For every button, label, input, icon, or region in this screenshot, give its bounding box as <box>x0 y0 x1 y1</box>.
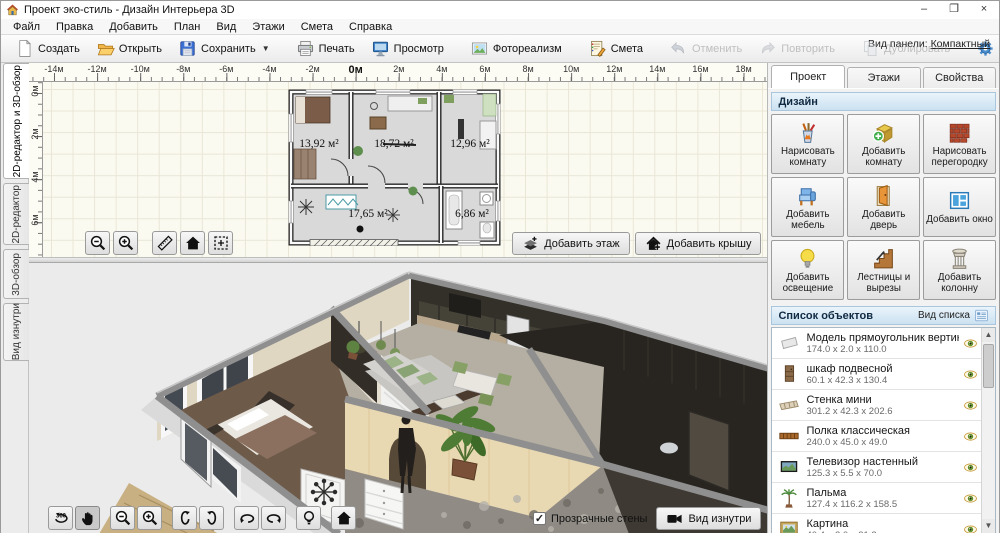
design-title: Дизайн <box>778 96 817 108</box>
eye-icon <box>963 491 978 506</box>
redo-button[interactable]: Повторить <box>750 36 843 61</box>
orbit-down-button[interactable] <box>199 506 224 530</box>
new-button[interactable]: Создать <box>7 36 88 61</box>
undo-button[interactable]: Отменить <box>661 36 750 61</box>
design-button-label: Добавить дверь <box>849 210 918 232</box>
estimate-label: Смета <box>611 43 643 55</box>
viewer-3d-toolbar: 360 <box>48 506 356 530</box>
object-dimensions: 127.4 x 116.2 x 158.5 <box>806 499 959 510</box>
menu-3[interactable]: Добавить <box>101 21 166 33</box>
object-text: Телевизор настенный125.3 x 5.5 x 70.0 <box>802 456 959 479</box>
view-tab-3[interactable]: 3D-обзор <box>3 249 29 299</box>
eye-icon <box>963 336 978 351</box>
transparent-walls-checkbox[interactable]: ✓ <box>533 512 546 525</box>
ruler-label-v: 6м <box>30 206 40 234</box>
add-light-button[interactable]: Добавить освещение <box>771 240 844 300</box>
draw-partition-icon <box>947 120 972 145</box>
home-button[interactable] <box>180 231 205 255</box>
add-furniture-button[interactable]: Добавить мебель <box>771 177 844 237</box>
view-tab-label: Вид изнутри <box>11 303 22 360</box>
object-dimensions: 125.3 x 5.5 x 70.0 <box>806 468 959 479</box>
object-list-item[interactable]: Стенка мини301.2 x 42.3 x 202.6 <box>772 390 981 421</box>
room-area-label: 12,96 м² <box>450 138 490 150</box>
object-text: Картина40.4 x 2.0 x 31.2 <box>802 518 959 533</box>
window-title: Проект эко-стиль - Дизайн Интерьера 3D <box>24 4 235 16</box>
undo-label: Отменить <box>692 43 742 55</box>
visibility-toggle[interactable] <box>959 336 981 351</box>
obj-panel-icon <box>778 332 800 354</box>
print-button[interactable]: Печать <box>288 36 363 61</box>
zoom-out-icon <box>114 509 132 527</box>
zoom-in-button[interactable] <box>113 231 138 255</box>
ruler-label-v: 4м <box>30 163 40 191</box>
floor-plan[interactable]: 13,92 м²18,72 м²12,96 м²17,65 м²6,86 м² <box>288 89 501 246</box>
view-tab-4[interactable]: Вид изнутри <box>3 303 29 361</box>
object-text: Пальма127.4 x 116.2 x 158.5 <box>802 487 959 510</box>
obj-palm-icon <box>778 487 800 509</box>
object-list-item[interactable]: шкаф подвесной60.1 x 42.3 x 130.4 <box>772 359 981 390</box>
visibility-toggle[interactable] <box>959 429 981 444</box>
view-tab-label: 2D-редактор <box>11 185 22 244</box>
undo-icon <box>669 39 688 58</box>
object-list: Модель прямоугольник вертик...174.0 x 2.… <box>771 327 996 533</box>
object-list-item[interactable]: Модель прямоугольник вертик...174.0 x 2.… <box>772 328 981 359</box>
object-name: Стенка мини <box>806 394 959 406</box>
tab-проект[interactable]: Проект <box>771 65 845 88</box>
add-roof-button[interactable]: Добавить крышу <box>635 232 762 255</box>
duplicate-icon <box>861 39 880 58</box>
design-button-label: Добавить мебель <box>773 210 842 232</box>
transparent-walls-option: ✓ Прозрачные стены <box>533 512 647 525</box>
title-bar: Проект эко-стиль - Дизайн Интерьера 3D –… <box>1 1 999 19</box>
save-button[interactable]: Сохранить▼ <box>170 36 278 61</box>
vertical-ruler: 0м2м4м6м8м <box>29 82 43 257</box>
ruler-label-h: -8м <box>168 64 198 74</box>
object-text: Полка классическая240.0 x 45.0 x 49.0 <box>802 425 959 448</box>
room-area-label: 6,86 м² <box>455 208 489 220</box>
object-thumbnail <box>775 393 802 417</box>
object-thumbnail <box>775 486 802 510</box>
object-list-item[interactable]: Пальма127.4 x 116.2 x 158.5 <box>772 483 981 514</box>
orbit-up-button[interactable] <box>172 506 197 530</box>
button-label: Добавить крышу <box>667 238 752 250</box>
editor-2d-toolbar <box>85 231 233 255</box>
ruler-label-h: -10м <box>125 64 155 74</box>
ruler-label-h: -4м <box>255 64 285 74</box>
add-furniture-icon <box>795 183 820 208</box>
scroll-thumb[interactable] <box>983 344 994 388</box>
redo-label: Повторить <box>781 43 835 55</box>
object-dimensions: 174.0 x 2.0 x 110.0 <box>806 344 959 355</box>
design-section-header: Дизайн <box>771 92 996 111</box>
object-name: Картина <box>806 518 959 530</box>
object-text: Стенка мини301.2 x 42.3 x 202.6 <box>802 394 959 417</box>
object-list-item[interactable]: Телевизор настенный125.3 x 5.5 x 70.0 <box>772 452 981 483</box>
view-tab-1[interactable]: 2D-редактор и 3D-обзор <box>3 63 30 179</box>
measure-button[interactable] <box>152 231 177 255</box>
list-view-label: Вид списка <box>918 310 970 321</box>
redo-icon <box>758 39 777 58</box>
rotate-360-icon: 360 <box>52 509 70 527</box>
toolbar: Вид панели: Компактный СоздатьОткрытьСох… <box>1 34 999 63</box>
design-buttons-grid: Нарисовать комнатуДобавить комнатуНарисо… <box>768 113 999 303</box>
view-tab-label: 2D-редактор и 3D-обзор <box>12 65 23 177</box>
eye-icon <box>963 398 978 413</box>
orbit-left-icon <box>238 509 256 527</box>
orbit-right-button[interactable] <box>261 506 286 530</box>
draw-partition-button[interactable]: Нарисовать перегородку <box>923 114 996 174</box>
ruler-label-h: 16м <box>686 64 716 74</box>
add-column-button[interactable]: Добавить колонну <box>923 240 996 300</box>
ruler-label-h: 6м <box>470 64 500 74</box>
zoom-out-button[interactable] <box>85 231 110 255</box>
preview-button[interactable]: Просмотр <box>363 36 452 61</box>
stairs-icon <box>871 246 896 271</box>
ruler-label-h: 8м <box>513 64 543 74</box>
light-bulb-button[interactable] <box>296 506 321 530</box>
object-dimensions: 60.1 x 42.3 x 130.4 <box>806 375 959 386</box>
draw-room-button[interactable]: Нарисовать комнату <box>771 114 844 174</box>
obj-wallunit-icon <box>778 394 800 416</box>
rotate-360-button[interactable]: 360 <box>48 506 73 530</box>
open-label: Открыть <box>119 43 162 55</box>
menu-2[interactable]: Правка <box>48 21 101 33</box>
orbit-left-button[interactable] <box>234 506 259 530</box>
object-list-item[interactable]: Полка классическая240.0 x 45.0 x 49.0 <box>772 421 981 452</box>
inside-view-label: Вид изнутри <box>688 513 751 525</box>
monitor-icon <box>371 39 390 58</box>
ruler-label-h: 18м <box>729 64 759 74</box>
ruler-label-v: 2м <box>30 120 40 148</box>
zoom-out-icon <box>89 234 107 252</box>
object-thumbnail <box>775 331 802 355</box>
eye-icon <box>963 460 978 475</box>
visibility-toggle[interactable] <box>959 367 981 382</box>
visibility-toggle[interactable] <box>959 491 981 506</box>
visibility-toggle[interactable] <box>959 460 981 475</box>
design-button-label: Нарисовать перегородку <box>925 147 994 169</box>
duplicate-button[interactable]: Дублировать <box>853 36 958 61</box>
menu-7[interactable]: Смета <box>293 21 341 33</box>
design-button-label: Лестницы и вырезы <box>849 273 918 295</box>
photorealism-label: Фотореализм <box>493 43 562 55</box>
ruler-label-h: 10м <box>556 64 586 74</box>
3d-scene[interactable] <box>29 263 767 533</box>
zoom-in-icon <box>141 509 159 527</box>
estimate-button[interactable]: Смета <box>580 36 651 61</box>
eye-icon <box>963 367 978 382</box>
view-mode-tabstrip: 2D-редактор и 3D-обзор2D-редактор3D-обзо… <box>1 63 29 533</box>
ruler-label-h: -2м <box>298 64 328 74</box>
right-panel-tabs: ПроектЭтажиСвойства <box>768 63 999 88</box>
menu-4[interactable]: План <box>166 21 209 33</box>
home-button[interactable] <box>331 506 356 530</box>
photorealism-button[interactable]: Фотореализм <box>462 36 570 61</box>
list-view-icon <box>974 308 989 323</box>
eye-icon <box>963 522 978 533</box>
room-area-label: 13,92 м² <box>299 138 339 150</box>
print-label: Печать <box>319 43 355 55</box>
add-column-icon <box>947 246 972 271</box>
eye-icon <box>963 429 978 444</box>
floor-plan-drawing: 13,92 м²18,72 м²12,96 м²17,65 м²6,86 м² <box>288 89 501 246</box>
orbit-up-icon <box>176 509 194 527</box>
object-text: шкаф подвесной60.1 x 42.3 x 130.4 <box>802 363 959 386</box>
object-name: шкаф подвесной <box>806 363 959 375</box>
maximize-button[interactable]: ❐ <box>939 1 969 19</box>
object-thumbnail <box>775 517 802 533</box>
estimate-icon <box>588 39 607 58</box>
room-area-label: 18,72 м² <box>374 138 414 150</box>
add-door-icon <box>871 183 896 208</box>
add-door-button[interactable]: Добавить дверь <box>847 177 920 237</box>
printer-icon <box>296 39 315 58</box>
object-name: Телевизор настенный <box>806 456 959 468</box>
ruler-label-h: 2м <box>384 64 414 74</box>
obj-tv-icon <box>778 456 800 478</box>
menu-8[interactable]: Справка <box>341 21 400 33</box>
close-button[interactable]: × <box>969 1 999 19</box>
tab-свойства[interactable]: Свойства <box>923 67 997 88</box>
object-list-scrollbar[interactable]: ▲ ▼ <box>981 328 995 533</box>
ruler-label-h: 4м <box>427 64 457 74</box>
new-label: Создать <box>38 43 80 55</box>
home-icon <box>184 234 202 252</box>
stairs-button[interactable]: Лестницы и вырезы <box>847 240 920 300</box>
object-thumbnail <box>775 455 802 479</box>
view-tab-2[interactable]: 2D-редактор <box>3 183 29 245</box>
ruler-label-h: 12м <box>599 64 629 74</box>
minimize-button[interactable]: – <box>909 1 939 19</box>
object-dimensions: 240.0 x 45.0 x 49.0 <box>806 437 959 448</box>
obj-cabinet-icon <box>778 363 800 385</box>
menu-bar: ФайлПравкаДобавитьПланВидЭтажиСметаСправ… <box>1 19 999 34</box>
scroll-up-arrow[interactable]: ▲ <box>982 328 995 342</box>
tab-этажи[interactable]: Этажи <box>847 67 921 88</box>
add-floor-button[interactable]: Добавить этаж <box>512 232 629 255</box>
object-name: Пальма <box>806 487 959 499</box>
horizontal-ruler: -14м-12м-10м-8м-6м-4м-2м0м2м4м6м8м10м12м… <box>29 63 767 82</box>
select-area-icon <box>212 234 230 252</box>
measure-icon <box>156 234 174 252</box>
new-document-icon <box>15 39 34 58</box>
menu-5[interactable]: Вид <box>208 21 244 33</box>
object-name: Полка классическая <box>806 425 959 437</box>
duplicate-label: Дублировать <box>884 43 950 55</box>
scroll-down-arrow[interactable]: ▼ <box>982 519 995 533</box>
save-dropdown-arrow[interactable]: ▼ <box>262 44 270 53</box>
3d-scene-drawing <box>29 263 767 533</box>
save-floppy-icon <box>178 39 197 58</box>
object-name: Модель прямоугольник вертик... <box>806 332 959 344</box>
design-button-label: Нарисовать комнату <box>773 147 842 169</box>
transparent-walls-label: Прозрачные стены <box>551 513 647 525</box>
list-view-button[interactable] <box>974 308 989 323</box>
ruler-label-h: 0м <box>341 64 371 76</box>
select-area-button[interactable] <box>208 231 233 255</box>
ruler-label-h: -12м <box>82 64 112 74</box>
open-button[interactable]: Открыть <box>88 36 170 61</box>
add-window-button[interactable]: Добавить окно <box>923 177 996 237</box>
zoom-in-icon <box>117 234 135 252</box>
menu-6[interactable]: Этажи <box>244 21 292 33</box>
save-label: Сохранить <box>201 43 256 55</box>
design-button-label: Добавить колонну <box>925 273 994 295</box>
inside-view-button[interactable]: Вид изнутри <box>656 507 761 530</box>
add-light-icon <box>795 246 820 271</box>
add-roof-icon <box>645 235 662 252</box>
camera-icon <box>666 510 683 527</box>
draw-room-icon <box>795 120 820 145</box>
visibility-toggle[interactable] <box>959 398 981 413</box>
object-text: Модель прямоугольник вертик...174.0 x 2.… <box>802 332 959 355</box>
object-thumbnail <box>775 424 802 448</box>
view-tab-label: 3D-обзор <box>11 253 22 296</box>
open-folder-icon <box>96 39 115 58</box>
object-dimensions: 40.4 x 2.0 x 31.2 <box>806 530 959 533</box>
add-room-icon <box>871 120 896 145</box>
ruler-label-h: -6м <box>211 64 241 74</box>
photo-icon <box>470 39 489 58</box>
button-label: Добавить этаж <box>544 238 619 250</box>
app-icon <box>6 4 19 17</box>
ruler-label-h: -14м <box>39 64 69 74</box>
preview-label: Просмотр <box>394 43 444 55</box>
room-area-label: 17,65 м² <box>348 208 388 220</box>
ruler-label-h: 14м <box>642 64 672 74</box>
objects-section-header: Список объектов Вид списка <box>771 306 996 325</box>
pan-hand-icon <box>79 509 97 527</box>
object-list-item[interactable]: Картина40.4 x 2.0 x 31.2 <box>772 514 981 533</box>
orbit-down-icon <box>203 509 221 527</box>
design-button-label: Добавить освещение <box>773 273 842 295</box>
add-floor-icon <box>522 235 539 252</box>
editor-2d: 0м2м4м6м8м -14м-12м-10м-8м-6м-4м-2м0м2м4… <box>29 63 767 257</box>
zoom-in-button[interactable] <box>137 506 162 530</box>
home-icon <box>335 509 353 527</box>
orbit-right-icon <box>265 509 283 527</box>
viewer-3d[interactable]: 360 ✓ Прозрачные стены Вид изнутри <box>29 263 767 533</box>
right-panel: ПроектЭтажиСвойства Дизайн Нарисовать ко… <box>767 63 999 533</box>
viewer-3d-controls: ✓ Прозрачные стены Вид изнутри <box>533 507 762 530</box>
obj-shelf-icon <box>778 425 800 447</box>
ruler-label-v: 8м <box>30 249 40 257</box>
pan-hand-button[interactable] <box>75 506 100 530</box>
object-thumbnail <box>775 362 802 386</box>
design-button-label: Добавить комнату <box>849 147 918 169</box>
app-window: Проект эко-стиль - Дизайн Интерьера 3D –… <box>0 0 1000 533</box>
add-window-icon <box>947 188 972 213</box>
objects-title: Список объектов <box>778 310 872 322</box>
visibility-toggle[interactable] <box>959 522 981 533</box>
object-dimensions: 301.2 x 42.3 x 202.6 <box>806 406 959 417</box>
design-button-label: Добавить окно <box>926 215 993 226</box>
floor-buttons: Добавить этажДобавить крышу <box>512 232 761 255</box>
light-bulb-icon <box>300 509 318 527</box>
obj-picture-icon <box>778 518 800 533</box>
zoom-out-button[interactable] <box>110 506 135 530</box>
menu-1[interactable]: Файл <box>5 21 48 33</box>
add-room-button[interactable]: Добавить комнату <box>847 114 920 174</box>
